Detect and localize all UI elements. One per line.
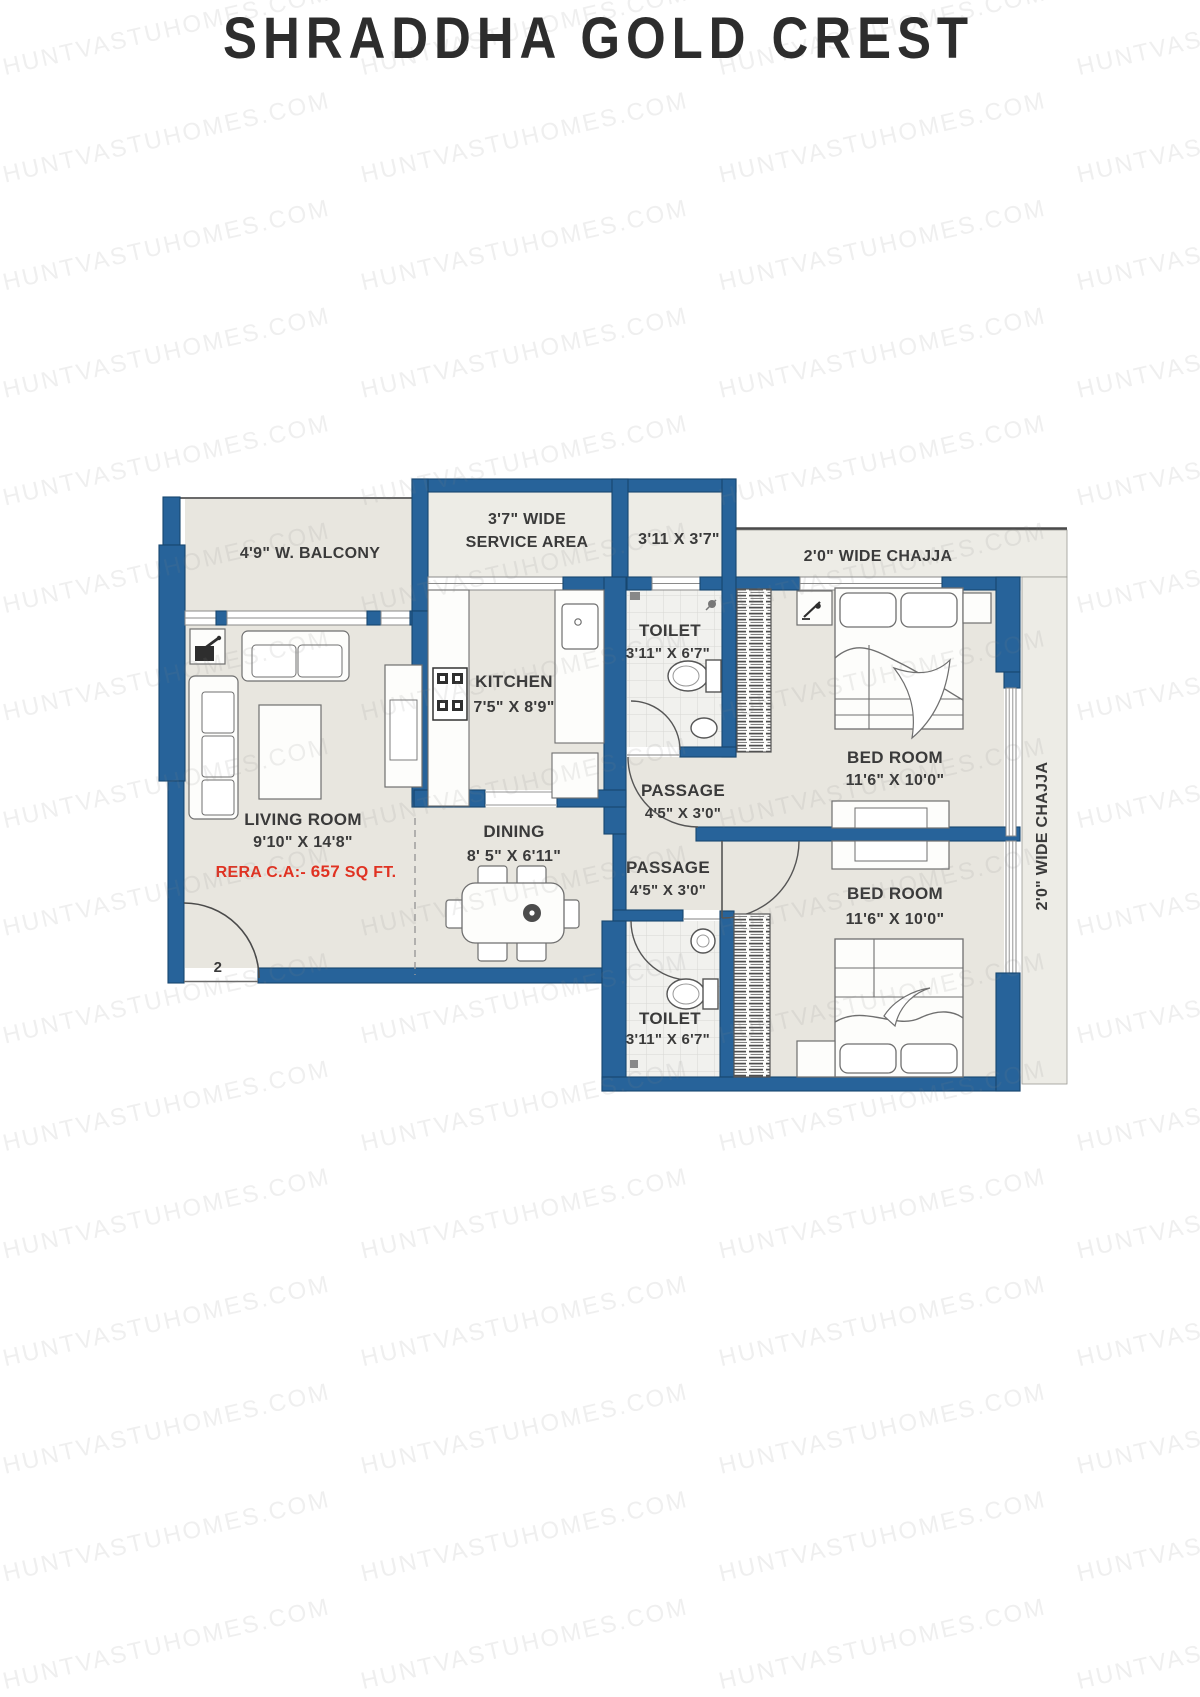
svg-text:LIVING ROOM: LIVING ROOM bbox=[244, 810, 362, 829]
svg-text:3'7" WIDE: 3'7" WIDE bbox=[488, 511, 566, 528]
svg-text:11'6" X 10'0": 11'6" X 10'0" bbox=[846, 911, 945, 928]
svg-text:2'0" WIDE CHAJJA: 2'0" WIDE CHAJJA bbox=[1034, 762, 1051, 911]
svg-text:TOILET: TOILET bbox=[639, 1009, 701, 1028]
svg-text:PASSAGE: PASSAGE bbox=[641, 781, 725, 800]
svg-text:7'5" X 8'9": 7'5" X 8'9" bbox=[473, 699, 554, 716]
svg-text:SHRADDHA GOLD CREST: SHRADDHA GOLD CREST bbox=[223, 6, 974, 71]
svg-text:3'11" X 6'7": 3'11" X 6'7" bbox=[626, 1031, 710, 1048]
svg-text:DINING: DINING bbox=[483, 822, 544, 841]
svg-text:8' 5" X 6'11": 8' 5" X 6'11" bbox=[467, 848, 561, 865]
svg-text:4'5" X 3'0": 4'5" X 3'0" bbox=[645, 805, 721, 822]
svg-text:4'5" X 3'0": 4'5" X 3'0" bbox=[630, 882, 706, 899]
